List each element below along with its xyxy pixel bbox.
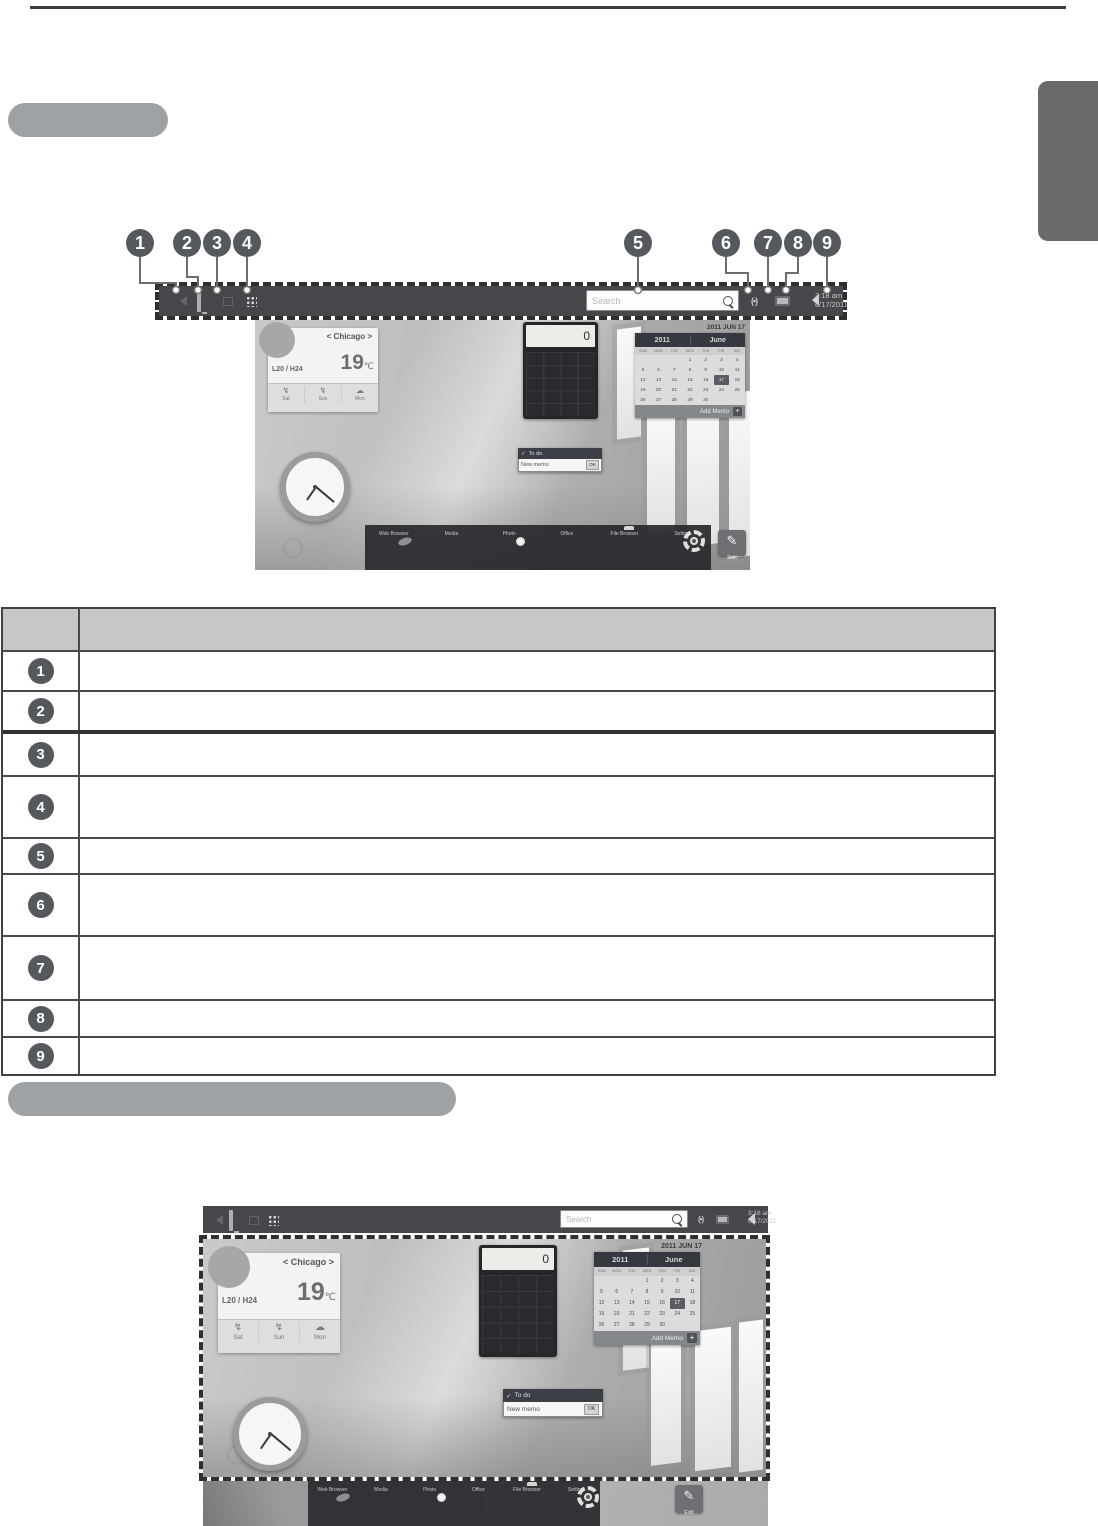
calculator-display: 0 [482, 1248, 554, 1270]
forecast-day: Sat [268, 396, 305, 403]
back-icon[interactable] [211, 1215, 223, 1225]
status-time: 3:18 am [748, 1210, 776, 1218]
weather-ball-decoration [259, 322, 295, 358]
calendar-day-cell: 24 [714, 385, 730, 395]
calendar-day-cell: 11 [729, 365, 745, 375]
calendar-day-cell [729, 395, 745, 405]
calculator-keys[interactable] [482, 1275, 554, 1354]
row-badge: 7 [28, 955, 54, 981]
weather-unit: ℃ [325, 1292, 336, 1303]
todo-check-icon: ✓ [506, 1392, 511, 1400]
table-row: 5 [3, 837, 994, 873]
todo-widget[interactable]: ✓ To do New memo OK [518, 448, 602, 472]
forecast-day: Mon [300, 1334, 340, 1343]
calendar-day-cell: 17 [670, 1298, 685, 1309]
app-dock: Web Browser Media Photo Office File Brow… [308, 1481, 600, 1526]
calendar-day-cell: 13 [609, 1298, 624, 1309]
row-description [80, 937, 994, 999]
dock-item-label: Media [358, 1487, 404, 1493]
forecast-icon: ↯ [218, 1322, 259, 1334]
dock-item-label: Web Browser [309, 1487, 355, 1493]
forecast-icon: ↯ [305, 386, 342, 396]
logo-mark [283, 538, 303, 558]
forecast-day: Sat [218, 1334, 259, 1343]
dock-item-media[interactable]: Media [428, 529, 474, 537]
table-row: 3 [3, 730, 994, 775]
weather-ball-decoration [208, 1246, 250, 1288]
table-row: 4 [3, 775, 994, 837]
calculator-widget[interactable]: 0 [479, 1245, 557, 1357]
forecast-icon: ☁ [300, 1322, 340, 1334]
calendar-day-header: FRI [714, 347, 730, 355]
calendar-day-cell: 18 [685, 1298, 700, 1309]
calendar-day-cell: 3 [714, 355, 730, 365]
table-header-description-cell [80, 609, 994, 650]
network-signal-icon[interactable]: (•) [698, 1215, 703, 1224]
forecast-icon: ↯ [268, 386, 305, 396]
dock-item-file-browser[interactable]: File Browser [504, 1485, 550, 1493]
dock-item-file-browser[interactable]: File Browser [601, 529, 647, 537]
calendar-day-cell: 18 [729, 375, 745, 385]
calendar-day-cell: 21 [624, 1309, 639, 1320]
row-description [80, 839, 994, 873]
status-date: 6/17/2011 [748, 1218, 776, 1226]
todo-item: New memo [521, 462, 549, 468]
calendar-month[interactable]: June [648, 1255, 701, 1264]
calendar-widget[interactable]: 2011 June SUNMONTUEWEDTHUFRISAT 12345678… [594, 1252, 700, 1345]
calendar-day-cell: 15 [639, 1298, 654, 1309]
callout-7: 7 [754, 229, 782, 257]
calendar-day-cell: 10 [714, 365, 730, 375]
forecast-day: Sun [259, 1334, 300, 1343]
table-header-row [3, 609, 994, 650]
calendar-day-cell: 25 [729, 385, 745, 395]
calendar-day-cell [670, 1320, 685, 1331]
todo-title: To do [514, 1392, 530, 1399]
calendar-day-cell: 21 [666, 385, 682, 395]
forecast-day: Mon [342, 396, 378, 403]
pencil-icon: ✎ [718, 530, 746, 552]
calendar-day-cell: 22 [639, 1309, 654, 1320]
dock-item-web-browser[interactable]: Web Browser [309, 1485, 355, 1493]
calendar-day-cell: 4 [729, 355, 745, 365]
status-date: 6/17/2011 [815, 300, 848, 309]
calendar-day-cell: 23 [655, 1309, 670, 1320]
dock-item-label: Media [428, 531, 474, 537]
app-dock: Web Browser Media Photo Office File Brow… [365, 525, 711, 570]
clock-pin [313, 485, 317, 489]
todo-widget[interactable]: ✓ To do New memo OK [503, 1389, 603, 1417]
add-memo-plus-button[interactable]: + [733, 407, 742, 416]
calendar-day-cell: 16 [698, 375, 714, 385]
row-description [80, 652, 994, 690]
row-description [80, 1001, 994, 1036]
calendar-day-cell: 19 [594, 1309, 609, 1320]
callout-2: 2 [173, 229, 201, 257]
row-description [80, 1038, 994, 1074]
apps-grid-icon[interactable] [267, 1214, 279, 1226]
clock-pin [268, 1432, 272, 1436]
edit-label: Edit [718, 555, 746, 561]
weather-unit: ℃ [364, 361, 374, 371]
calendar-day-header: FRI [670, 1267, 685, 1276]
calendar-day-header: THU [655, 1267, 670, 1276]
callout-1: 1 [126, 229, 154, 257]
calendar-day-cell: 22 [682, 385, 698, 395]
dock-item-photo[interactable]: Photo [407, 1485, 453, 1493]
calendar-day-cell: 28 [624, 1320, 639, 1331]
weather-temp: 19 [297, 1278, 325, 1306]
calendar-day-header: THU [698, 347, 714, 355]
table-row: 8 [3, 999, 994, 1036]
calendar-date-label: 2011 JUN 17 [707, 324, 745, 331]
section-heading-pill-2 [8, 1082, 456, 1116]
calendar-day-cell [624, 1276, 639, 1287]
calendar-day-cell: 2 [655, 1276, 670, 1287]
callout-3: 3 [203, 229, 231, 257]
calendar-day-cell: 26 [635, 395, 651, 405]
dock-item-web-browser[interactable]: Web Browser [371, 529, 417, 537]
calendar-day-cell: 9 [698, 365, 714, 375]
calendar-day-cell: 9 [655, 1287, 670, 1298]
calendar-day-cell: 12 [594, 1298, 609, 1309]
table-row: 6 [3, 873, 994, 935]
row-badge: 9 [28, 1043, 54, 1069]
calendar-day-cell: 17 [714, 375, 730, 385]
calendar-day-cell: 6 [609, 1287, 624, 1298]
calendar-day-cell: 20 [651, 385, 667, 395]
search-icon[interactable] [672, 1214, 682, 1224]
forecast-icon: ↯ [259, 1322, 300, 1334]
calendar-day-cell: 10 [670, 1287, 685, 1298]
calendar-day-cell: 7 [624, 1287, 639, 1298]
weather-range: L20 / H24 [272, 366, 303, 373]
todo-ok-button[interactable]: OK [584, 1404, 599, 1415]
callout-description-table: 1 2 3 4 5 6 7 8 9 [1, 607, 996, 1076]
dock-item-label: File Browser [504, 1487, 550, 1493]
todo-check-icon: ✓ [521, 451, 526, 457]
window-panel [739, 1320, 763, 1473]
calendar-day-header: TUE [624, 1267, 639, 1276]
calendar-day-cell: 14 [624, 1298, 639, 1309]
row-badge: 5 [28, 843, 54, 869]
add-memo-label[interactable]: Add Memo [700, 409, 729, 415]
clock-widget[interactable] [280, 452, 350, 522]
calendar-day-cell [635, 355, 651, 365]
dock-item-label: Office [544, 531, 590, 537]
calendar-day-cell: 5 [594, 1287, 609, 1298]
calendar-day-cell: 8 [682, 365, 698, 375]
calendar-day-cell: 7 [666, 365, 682, 375]
calendar-day-cell: 15 [682, 375, 698, 385]
calendar-day-cell: 14 [666, 375, 682, 385]
calendar-day-cell: 16 [655, 1298, 670, 1309]
todo-ok-button[interactable]: OK [586, 460, 599, 470]
home-screen-2: < Chicago > L20 / H24 19℃ ↯↯☁ SatSunMon … [203, 1239, 766, 1477]
calendar-day-cell: 30 [655, 1320, 670, 1331]
calendar-day-cell [651, 355, 667, 365]
home-toolbar-2: Search (•) 3:18 am 6/17/2011 [203, 1206, 768, 1233]
dock-item-label: Photo [407, 1487, 453, 1493]
calendar-day-cell: 1 [639, 1276, 654, 1287]
callout-4: 4 [233, 229, 261, 257]
row-badge: 2 [28, 698, 54, 724]
home-screen: < Chicago > L20 / H24 19℃ ↯↯☁ SatSunMon … [255, 320, 750, 570]
calendar-day-cell: 3 [670, 1276, 685, 1287]
calendar-day-cell [685, 1320, 700, 1331]
row-description [80, 875, 994, 935]
clock-widget[interactable] [233, 1397, 307, 1471]
calendar-day-cell: 13 [651, 375, 667, 385]
calendar-day-cell [609, 1276, 624, 1287]
clock-minute-hand [315, 486, 334, 503]
calendar-date-label: 2011 JUN 17 [661, 1243, 702, 1250]
calendar-day-cell: 19 [635, 385, 651, 395]
weather-widget[interactable]: < Chicago > L20 / H24 19℃ ↯↯☁ SatSunMon [268, 328, 378, 412]
calendar-day-cell [594, 1276, 609, 1287]
calendar-day-cell: 29 [682, 395, 698, 405]
floor-photo [203, 1481, 308, 1526]
clock-status: 3:18 am 6/17/2011 [748, 1210, 776, 1226]
callout-8: 8 [784, 229, 812, 257]
calendar-day-header: SAT [729, 347, 745, 355]
row-badge: 3 [28, 742, 54, 768]
callout-9: 9 [813, 229, 841, 257]
calendar-year[interactable]: 2011 [635, 337, 690, 344]
dock-item-label: Office [455, 1487, 501, 1493]
forecast-icon: ☁ [342, 386, 378, 396]
widget-area-highlight: < Chicago > L20 / H24 19℃ ↯↯☁ SatSunMon … [199, 1235, 770, 1481]
dock-item-label: File Browser [601, 531, 647, 537]
edit-button[interactable]: ✎ Edit [675, 1485, 703, 1513]
calendar-day-cell: 28 [666, 395, 682, 405]
calendar-day-cell: 11 [685, 1287, 700, 1298]
calendar-day-header: WED [682, 347, 698, 355]
forecast-day: Sun [305, 396, 342, 403]
window-panel [647, 406, 675, 534]
todo-title: To do [529, 451, 542, 457]
callout-6: 6 [712, 229, 740, 257]
calendar-day-cell: 8 [639, 1287, 654, 1298]
row-description [80, 692, 994, 730]
weather-range: L20 / H24 [222, 1296, 257, 1305]
edit-button[interactable]: ✎ Edit [718, 530, 746, 556]
weather-forecast: ↯↯☁ SatSunMon [268, 383, 378, 412]
calendar-day-cell: 6 [651, 365, 667, 375]
calendar-day-cell: 27 [651, 395, 667, 405]
row-description [80, 734, 994, 775]
chapter-side-tab [1038, 81, 1098, 241]
calendar-day-cell: 5 [635, 365, 651, 375]
dock-strip: Web Browser Media Photo Office File Brow… [203, 1481, 768, 1526]
clock-minute-hand [270, 1433, 291, 1451]
calendar-day-cell: 1 [682, 355, 698, 365]
dock-item-office[interactable]: Office [455, 1485, 501, 1493]
table-row: 7 [3, 935, 994, 999]
search-placeholder: Search [560, 1215, 672, 1224]
window-panel [651, 1337, 681, 1466]
pencil-icon: ✎ [675, 1485, 703, 1507]
callout-5: 5 [624, 229, 652, 257]
calculator-display: 0 [526, 325, 595, 347]
mode-icon[interactable] [249, 1216, 259, 1225]
row-badge: 8 [28, 1006, 54, 1032]
calendar-day-header: MON [651, 347, 667, 355]
calendar-year[interactable]: 2011 [594, 1255, 647, 1264]
add-memo-label[interactable]: Add Memo [652, 1335, 683, 1342]
window-panel [695, 1327, 731, 1471]
calendar-day-header: SAT [685, 1267, 700, 1276]
calendar-day-cell: 12 [635, 375, 651, 385]
dock-item-label: Photo [486, 531, 532, 537]
table-row: 2 [3, 690, 994, 730]
calendar-day-cell [666, 355, 682, 365]
calendar-day-header: SUN [594, 1267, 609, 1276]
table-row: 9 [3, 1036, 994, 1074]
calendar-day-header: MON [609, 1267, 624, 1276]
calculator-keys[interactable] [526, 352, 595, 416]
edit-label: Edit [675, 1510, 703, 1516]
table-row: 1 [3, 650, 994, 690]
dock-item-setting[interactable]: Setting [553, 1485, 599, 1493]
row-badge: 1 [28, 658, 54, 684]
pc-screen-icon[interactable] [229, 1210, 233, 1231]
calendar-day-cell: 24 [670, 1309, 685, 1320]
weather-temp: 19 [341, 351, 364, 374]
row-badge: 4 [28, 794, 54, 820]
calendar-widget[interactable]: 2011 June SUNMONTUEWEDTHUFRISAT 12345678… [635, 333, 745, 418]
calendar-day-header: SUN [635, 347, 651, 355]
weather-forecast: ↯↯☁ SatSunMon [218, 1319, 340, 1353]
display-icon[interactable] [716, 1215, 729, 1224]
calendar-day-cell: 20 [609, 1309, 624, 1320]
calendar-day-cell: 25 [685, 1309, 700, 1320]
dock-item-label: Web Browser [371, 531, 417, 537]
calculator-widget[interactable]: 0 [523, 322, 598, 419]
row-description [80, 777, 994, 837]
calendar-day-cell: 27 [609, 1320, 624, 1331]
page-top-rule [30, 6, 1066, 9]
calendar-day-header: TUE [666, 347, 682, 355]
calendar-day-cell: 30 [698, 395, 714, 405]
calendar-day-cell [714, 395, 730, 405]
dock-item-media[interactable]: Media [358, 1485, 404, 1493]
calendar-day-cell: 29 [639, 1320, 654, 1331]
search-input[interactable]: Search [560, 1210, 688, 1228]
calendar-day-header: WED [639, 1267, 654, 1276]
calendar-day-cell: 2 [698, 355, 714, 365]
calendar-day-cell: 26 [594, 1320, 609, 1331]
dock-item-office[interactable]: Office [544, 529, 590, 537]
table-header-number-cell [3, 609, 80, 650]
todo-item: New memo [507, 1406, 540, 1413]
calendar-month[interactable]: June [691, 337, 746, 344]
section-heading-pill-1 [8, 103, 168, 137]
dock-item-setting[interactable]: Setting [659, 529, 705, 537]
weather-widget[interactable]: < Chicago > L20 / H24 19℃ ↯↯☁ SatSunMon [218, 1253, 340, 1353]
dock-item-photo[interactable]: Photo [486, 529, 532, 537]
calendar-day-cell: 4 [685, 1276, 700, 1287]
add-memo-plus-button[interactable]: + [687, 1333, 697, 1343]
row-badge: 6 [28, 892, 54, 918]
calendar-day-cell: 23 [698, 385, 714, 395]
